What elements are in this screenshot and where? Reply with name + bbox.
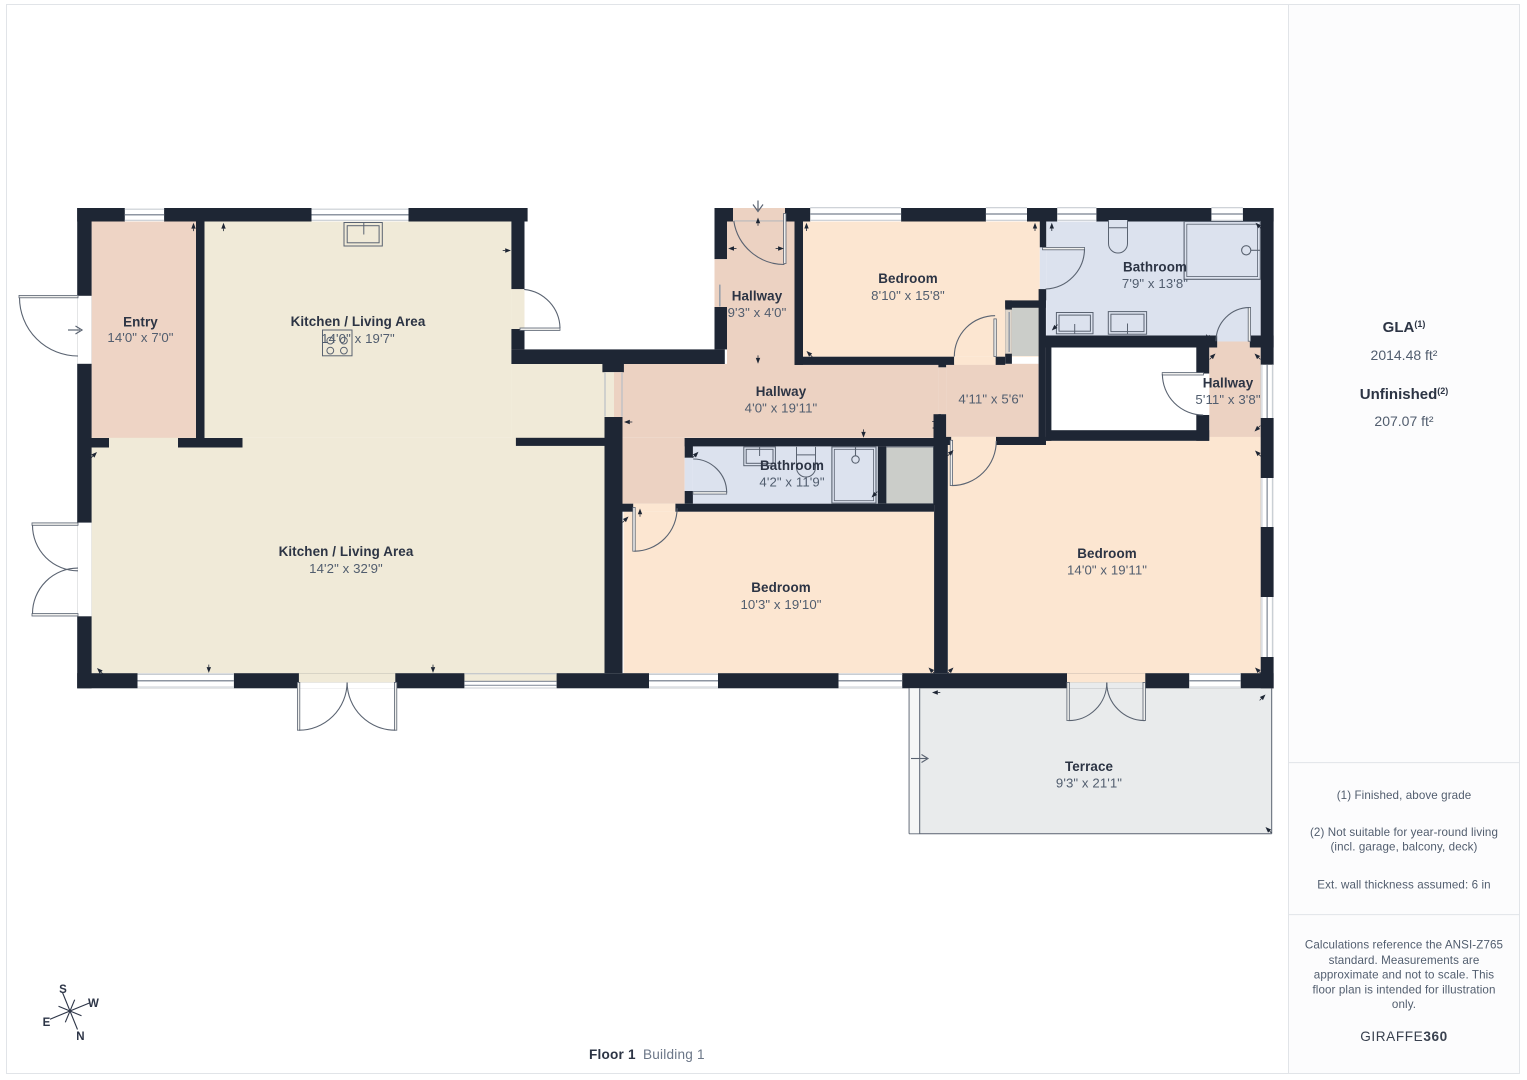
svg-text:Bedroom: Bedroom — [1077, 546, 1136, 561]
svg-text:207.07 ft²: 207.07 ft² — [1374, 413, 1433, 429]
svg-text:N: N — [76, 1031, 84, 1043]
svg-text:Building 1: Building 1 — [643, 1047, 705, 1062]
svg-text:Hallway: Hallway — [756, 384, 807, 399]
svg-text:floor plan is intended for ill: floor plan is intended for illustration — [1312, 984, 1495, 997]
svg-text:10'3" x 19'10": 10'3" x 19'10" — [740, 597, 821, 612]
svg-text:Terrace: Terrace — [1065, 759, 1113, 774]
svg-text:9'3" x 4'0": 9'3" x 4'0" — [728, 305, 787, 320]
svg-text:S: S — [59, 984, 67, 996]
svg-text:8'10" x 15'8": 8'10" x 15'8" — [871, 288, 945, 303]
svg-text:9'3" x 21'1": 9'3" x 21'1" — [1056, 776, 1122, 791]
svg-text:Ext. wall thickness assumed: 6: Ext. wall thickness assumed: 6 in — [1317, 879, 1490, 892]
svg-text:Bedroom: Bedroom — [751, 580, 810, 595]
svg-text:W: W — [88, 998, 99, 1010]
svg-text:5'11" x 3'8": 5'11" x 3'8" — [1195, 392, 1260, 407]
svg-text:4'0" x 19'11": 4'0" x 19'11" — [745, 401, 818, 416]
svg-text:14'0" x 19'11": 14'0" x 19'11" — [1067, 563, 1147, 578]
svg-text:Hallway: Hallway — [1203, 376, 1254, 391]
svg-text:4'11" x 5'6": 4'11" x 5'6" — [958, 392, 1023, 407]
svg-text:GIRAFFE360: GIRAFFE360 — [1360, 1029, 1448, 1044]
svg-text:14'0" x 7'0": 14'0" x 7'0" — [107, 330, 173, 345]
svg-text:(1) Finished, above grade: (1) Finished, above grade — [1337, 789, 1472, 802]
svg-text:Kitchen / Living Area: Kitchen / Living Area — [291, 314, 426, 329]
svg-text:Bedroom: Bedroom — [878, 271, 937, 286]
svg-text:Kitchen / Living Area: Kitchen / Living Area — [279, 544, 414, 559]
svg-text:Unfinished(2): Unfinished(2) — [1360, 386, 1449, 403]
svg-text:2014.48 ft²: 2014.48 ft² — [1371, 347, 1438, 363]
svg-text:only.: only. — [1392, 998, 1416, 1011]
svg-text:approximate and not to scale.: approximate and not to scale. This — [1314, 969, 1495, 982]
svg-text:Floor 1: Floor 1 — [589, 1047, 636, 1062]
svg-text:14'0" x 19'7": 14'0" x 19'7" — [321, 331, 395, 346]
svg-text:Calculations reference the ANS: Calculations reference the ANSI-Z765 — [1305, 939, 1503, 952]
svg-text:(2) Not suitable for year-roun: (2) Not suitable for year-round living — [1310, 826, 1498, 839]
svg-text:14'2" x 32'9": 14'2" x 32'9" — [309, 561, 383, 576]
svg-text:Bathroom: Bathroom — [760, 458, 824, 473]
svg-text:standard. Measurements are: standard. Measurements are — [1329, 954, 1480, 967]
svg-text:Hallway: Hallway — [732, 289, 783, 304]
svg-text:Entry: Entry — [123, 315, 158, 330]
svg-text:(incl. garage, balcony, deck): (incl. garage, balcony, deck) — [1330, 841, 1477, 854]
svg-text:7'9" x 13'8": 7'9" x 13'8" — [1122, 276, 1188, 291]
svg-text:4'2" x 11'9": 4'2" x 11'9" — [759, 475, 824, 490]
svg-text:Bathroom: Bathroom — [1123, 260, 1187, 275]
svg-text:E: E — [43, 1017, 51, 1029]
